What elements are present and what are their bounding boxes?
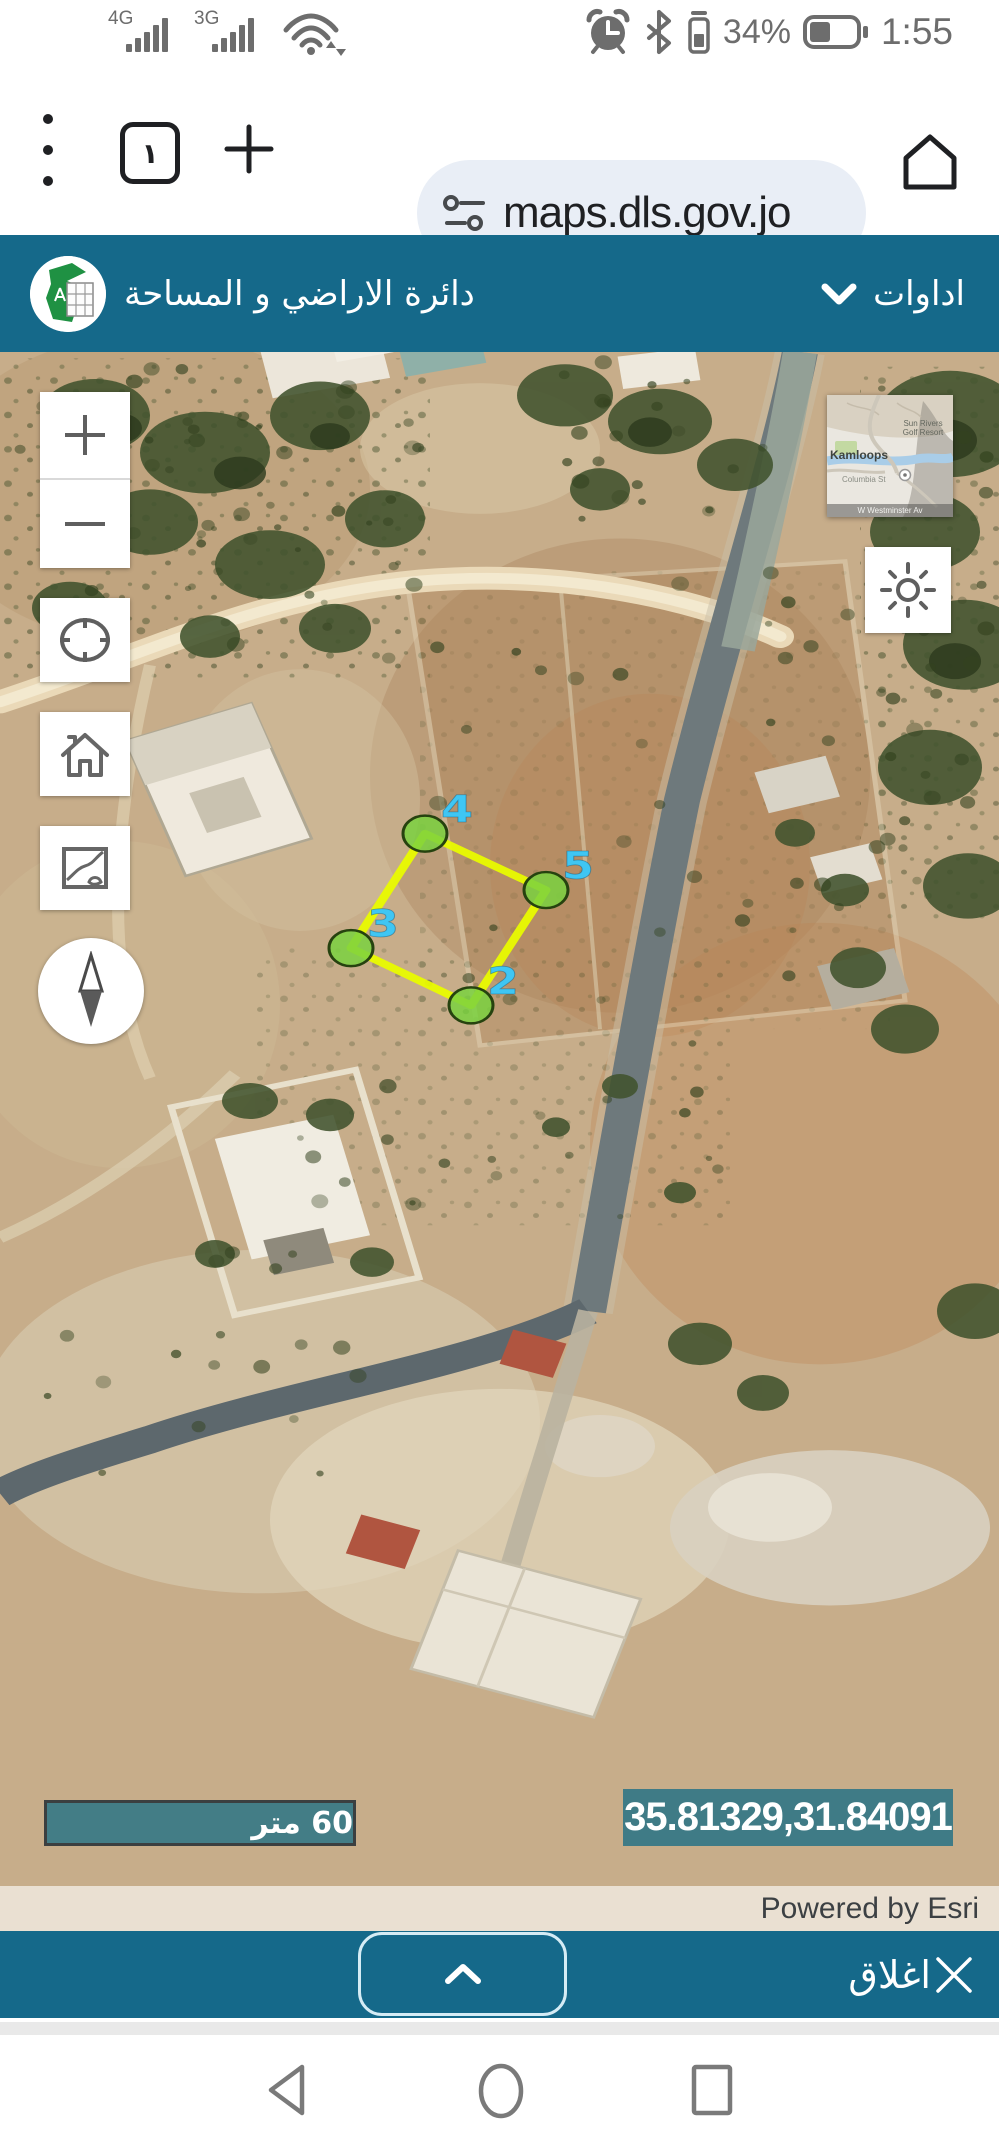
vertex-label-2: 2 [487, 959, 519, 1003]
compass-control[interactable] [38, 938, 144, 1044]
satellite-imagery: 2345 [0, 352, 999, 1931]
map-icon [61, 846, 109, 890]
tools-label: اداوات [873, 274, 965, 314]
zoom-control [40, 392, 130, 568]
browser-toolbar: ١ maps.dls.gov.jo [0, 64, 999, 235]
vertex-label-4: 4 [441, 787, 473, 831]
signal-3g-icon: 3G [194, 8, 266, 56]
tools-dropdown[interactable]: اداوات [821, 235, 965, 352]
sun-icon [880, 562, 936, 618]
phone-screen: 4G 3G [0, 0, 999, 2140]
inset-bottom-street-label: W Westminster Av [857, 506, 922, 515]
scale-bar: 60 متر [44, 1800, 356, 1846]
chevron-down-icon [821, 282, 857, 306]
dls-logo [30, 256, 106, 332]
app-header: دائرة الاراضي و المساحة اداوات [0, 235, 999, 352]
nav-home-button[interactable] [476, 2063, 526, 2119]
tab-count: ١ [141, 137, 158, 170]
earbud-battery-icon [687, 9, 711, 55]
basemap-brightness-button[interactable] [865, 547, 951, 633]
plus-icon [63, 413, 107, 457]
bluetooth-icon [643, 8, 675, 56]
nav-recents-button[interactable] [690, 2063, 734, 2117]
status-bar: 4G 3G [0, 0, 999, 64]
site-controls-icon [443, 193, 487, 233]
chevron-up-icon [443, 1962, 483, 1986]
compass-needle-icon [71, 951, 111, 1031]
zoom-in-button[interactable] [40, 392, 130, 480]
home-icon [59, 729, 111, 779]
wifi-icon [280, 8, 350, 56]
url-text: maps.dls.gov.jo [503, 188, 790, 238]
inset-city-label: Kamloops [830, 448, 888, 462]
default-extent-button[interactable] [40, 712, 130, 796]
tab-switcher-button[interactable]: ١ [120, 122, 180, 184]
inset-street-label: Columbia St [842, 475, 886, 484]
battery-percent: 34% [723, 13, 791, 52]
vertex-label-5: 5 [562, 844, 594, 888]
map-attribution: Powered by Esri [0, 1886, 999, 1931]
android-nav-bar [0, 2035, 999, 2140]
nav-back-button[interactable] [266, 2063, 308, 2117]
zoom-out-button[interactable] [40, 480, 130, 568]
expand-sheet-button[interactable] [358, 1932, 567, 2016]
inset-poi-label: Sun Rivers Golf Resort [896, 419, 950, 437]
close-label: اغلاق [848, 1953, 931, 1997]
crosshair-icon [58, 616, 112, 664]
inset-attribution-strip: W Westminster Av [827, 504, 953, 517]
close-tool-button[interactable]: اغلاق [848, 1931, 975, 2018]
minus-icon [63, 502, 107, 546]
locate-button[interactable] [40, 598, 130, 682]
alarm-icon [585, 8, 631, 56]
coordinates-readout: 35.81329,31.84091 [623, 1789, 953, 1846]
browser-menu-button[interactable] [36, 114, 60, 186]
new-tab-button[interactable] [222, 122, 276, 176]
nav-divider [0, 2022, 999, 2036]
battery-icon [803, 14, 869, 50]
clock: 1:55 [881, 11, 953, 53]
signal-4g-icon: 4G [108, 8, 180, 56]
status-right-icons: 34% 1:55 [585, 8, 953, 56]
scale-label: 60 متر [251, 1806, 353, 1841]
svg-text:4G: 4G [108, 8, 133, 29]
status-left-icons: 4G 3G [108, 8, 350, 56]
basemap-button[interactable] [40, 826, 130, 910]
close-icon [933, 1954, 975, 1996]
map-canvas[interactable]: 2345 [0, 352, 999, 1931]
browser-home-button[interactable] [898, 130, 962, 194]
overview-inset-map[interactable]: Sun Rivers Golf Resort Kamloops Columbia… [827, 395, 953, 517]
svg-text:3G: 3G [194, 8, 219, 29]
vertex-label-3: 3 [367, 902, 399, 946]
page-title: دائرة الاراضي و المساحة [124, 235, 475, 352]
